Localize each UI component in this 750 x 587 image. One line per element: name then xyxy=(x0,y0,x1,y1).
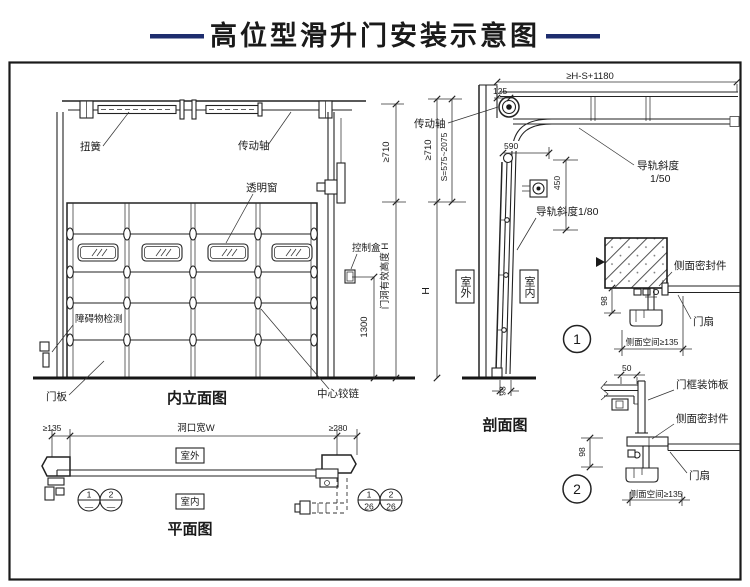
svg-text:1: 1 xyxy=(367,490,372,500)
door-operator xyxy=(317,118,345,203)
svg-text:—: — xyxy=(107,502,116,512)
caption-plan: 平面图 xyxy=(167,521,212,538)
leader-section-drive-shaft xyxy=(448,107,498,123)
dim-top: ≥H-S+1180 xyxy=(494,71,740,92)
plan-bracket-left xyxy=(45,478,64,500)
label-rail-slope-80: 导轨斜度1/80 xyxy=(536,205,599,218)
svg-text:590: 590 xyxy=(504,141,518,151)
svg-text:侧面空间≥135: 侧面空间≥135 xyxy=(626,337,679,347)
dim-right: ≥280 xyxy=(329,423,348,433)
svg-text:450: 450 xyxy=(552,176,562,190)
svg-text:≥710: ≥710 xyxy=(381,141,392,162)
page-title: 高位型滑升门安装示意图 xyxy=(150,20,600,51)
svg-text:50: 50 xyxy=(622,363,632,373)
view-plan: ≥135 洞口宽W ≥280 xyxy=(42,422,402,538)
dim-98-detail2: 98 xyxy=(577,435,603,470)
dim-opening-height: ≥710 门洞有效高度 H xyxy=(379,101,406,381)
page: 高位型滑升门安装示意图 xyxy=(0,0,750,587)
obstacle-sensor xyxy=(40,342,49,367)
section-wall xyxy=(479,85,497,378)
svg-text:S=575~2075: S=575~2075 xyxy=(439,132,449,181)
label-door-leaf-2: 门扇 xyxy=(689,469,710,482)
svg-text:侧面空间≥135: 侧面空间≥135 xyxy=(630,489,683,499)
installation-diagram: 高位型滑升门安装示意图 xyxy=(0,0,750,587)
cable-drum xyxy=(499,97,519,117)
dim-450: 450 xyxy=(552,157,578,233)
svg-text:1300: 1300 xyxy=(359,316,370,337)
leader-door-leaf-2 xyxy=(670,452,687,473)
svg-text:≥710: ≥710 xyxy=(423,139,434,160)
label-door-leaf-1: 门扇 xyxy=(693,315,714,328)
door-leaf-2 xyxy=(668,444,740,451)
door-leaf-1 xyxy=(668,286,740,293)
wall-block xyxy=(605,238,667,288)
label-rail-slope-name: 导轨斜度 xyxy=(637,159,679,172)
dim-headroom: ≥710 S=575~2075 H xyxy=(420,96,466,381)
ref-bubble-2: 2 — xyxy=(100,489,122,512)
label-frame-panel: 门框装饰板 xyxy=(676,378,729,391)
title-text: 高位型滑升门安装示意图 xyxy=(210,20,540,51)
leader-rail-slope-80 xyxy=(517,218,536,250)
leader-door-leaf-1 xyxy=(678,295,691,319)
label-control-box: 控制盒 xyxy=(352,242,381,254)
dim-98-section: 98 xyxy=(492,380,519,396)
label-torsion-spring: 扭簧 xyxy=(80,140,101,153)
horizontal-track xyxy=(500,92,739,127)
caption-elevation: 内立面图 xyxy=(167,389,227,407)
leader-drive-shaft xyxy=(268,112,291,145)
svg-text:98: 98 xyxy=(498,386,508,396)
svg-text:1: 1 xyxy=(87,490,92,500)
caption-section: 剖面图 xyxy=(482,416,527,434)
anchor-mark xyxy=(596,257,605,267)
leader-frame-panel xyxy=(648,390,674,400)
torsion-shaft xyxy=(68,100,352,119)
detail-2-number: 2 xyxy=(573,481,581,497)
svg-text:98: 98 xyxy=(577,447,587,457)
label-center-hinge: 中心铰链 xyxy=(317,387,359,400)
ref-bubble-4: 2 26 xyxy=(380,489,402,512)
ref-bubble-3: 1 26 xyxy=(358,489,380,512)
plan-wall-left xyxy=(42,457,70,476)
seal-assembly-1 xyxy=(630,283,668,326)
control-box xyxy=(345,270,355,283)
label-section-outdoor: 室外 xyxy=(459,275,472,299)
label-side-seal-1: 侧面密封件 xyxy=(674,259,727,272)
svg-text:98: 98 xyxy=(599,296,609,306)
svg-text:H: H xyxy=(420,287,432,295)
label-door-panel: 门板 xyxy=(46,390,67,403)
svg-text:≥H-S+1180: ≥H-S+1180 xyxy=(566,71,614,82)
label-plan-outdoor: 室外 xyxy=(180,450,200,462)
motor-operator xyxy=(522,180,547,197)
detail-1-number: 1 xyxy=(573,331,581,347)
dim-width: 洞口宽W xyxy=(177,422,215,434)
svg-text:26: 26 xyxy=(364,502,374,512)
label-section-drive-shaft: 传动轴 xyxy=(414,117,446,130)
ref-bubble-1: 1 — xyxy=(78,489,100,512)
view-elevation: 扭簧 传动轴 透明窗 控制盒 障碍物检测 门板 中心铰链 内立面图 1300 ≥… xyxy=(33,100,415,407)
dim-side-space-2: 侧面空间≥135 xyxy=(622,489,690,506)
dim-1300: 1300 xyxy=(352,274,377,381)
svg-text:2: 2 xyxy=(109,490,114,500)
detail-2: 2 50 xyxy=(563,363,740,506)
svg-text:26: 26 xyxy=(386,502,396,512)
svg-text:—: — xyxy=(85,502,94,512)
svg-text:125: 125 xyxy=(493,86,507,96)
plan-door-slab xyxy=(57,470,327,476)
label-section-indoor: 室内 xyxy=(523,275,536,299)
label-rail-slope-value: 1/50 xyxy=(650,173,671,185)
label-plan-indoor: 室内 xyxy=(180,496,199,508)
leader-torsion-spring xyxy=(103,112,129,146)
detail-1: 1 98 侧面密封件 门扇 xyxy=(564,238,741,356)
frame-panel-profile xyxy=(601,381,648,433)
label-window: 透明窗 xyxy=(246,181,278,194)
svg-text:2: 2 xyxy=(389,490,394,500)
leader-rail-slope xyxy=(579,128,634,165)
svg-text:门洞有效高度 H: 门洞有效高度 H xyxy=(379,243,391,310)
label-obstacle-detect: 障碍物检测 xyxy=(75,313,123,325)
dim-left: ≥135 xyxy=(43,423,62,433)
seal-assembly-2 xyxy=(626,437,668,482)
leader-control-box xyxy=(351,254,357,269)
title-dash-left xyxy=(150,34,204,39)
label-side-seal-2: 侧面密封件 xyxy=(676,412,729,425)
title-dash-right xyxy=(546,34,600,39)
dim-98-detail1: 98 xyxy=(599,285,621,316)
label-drive-shaft: 传动轴 xyxy=(238,139,270,152)
